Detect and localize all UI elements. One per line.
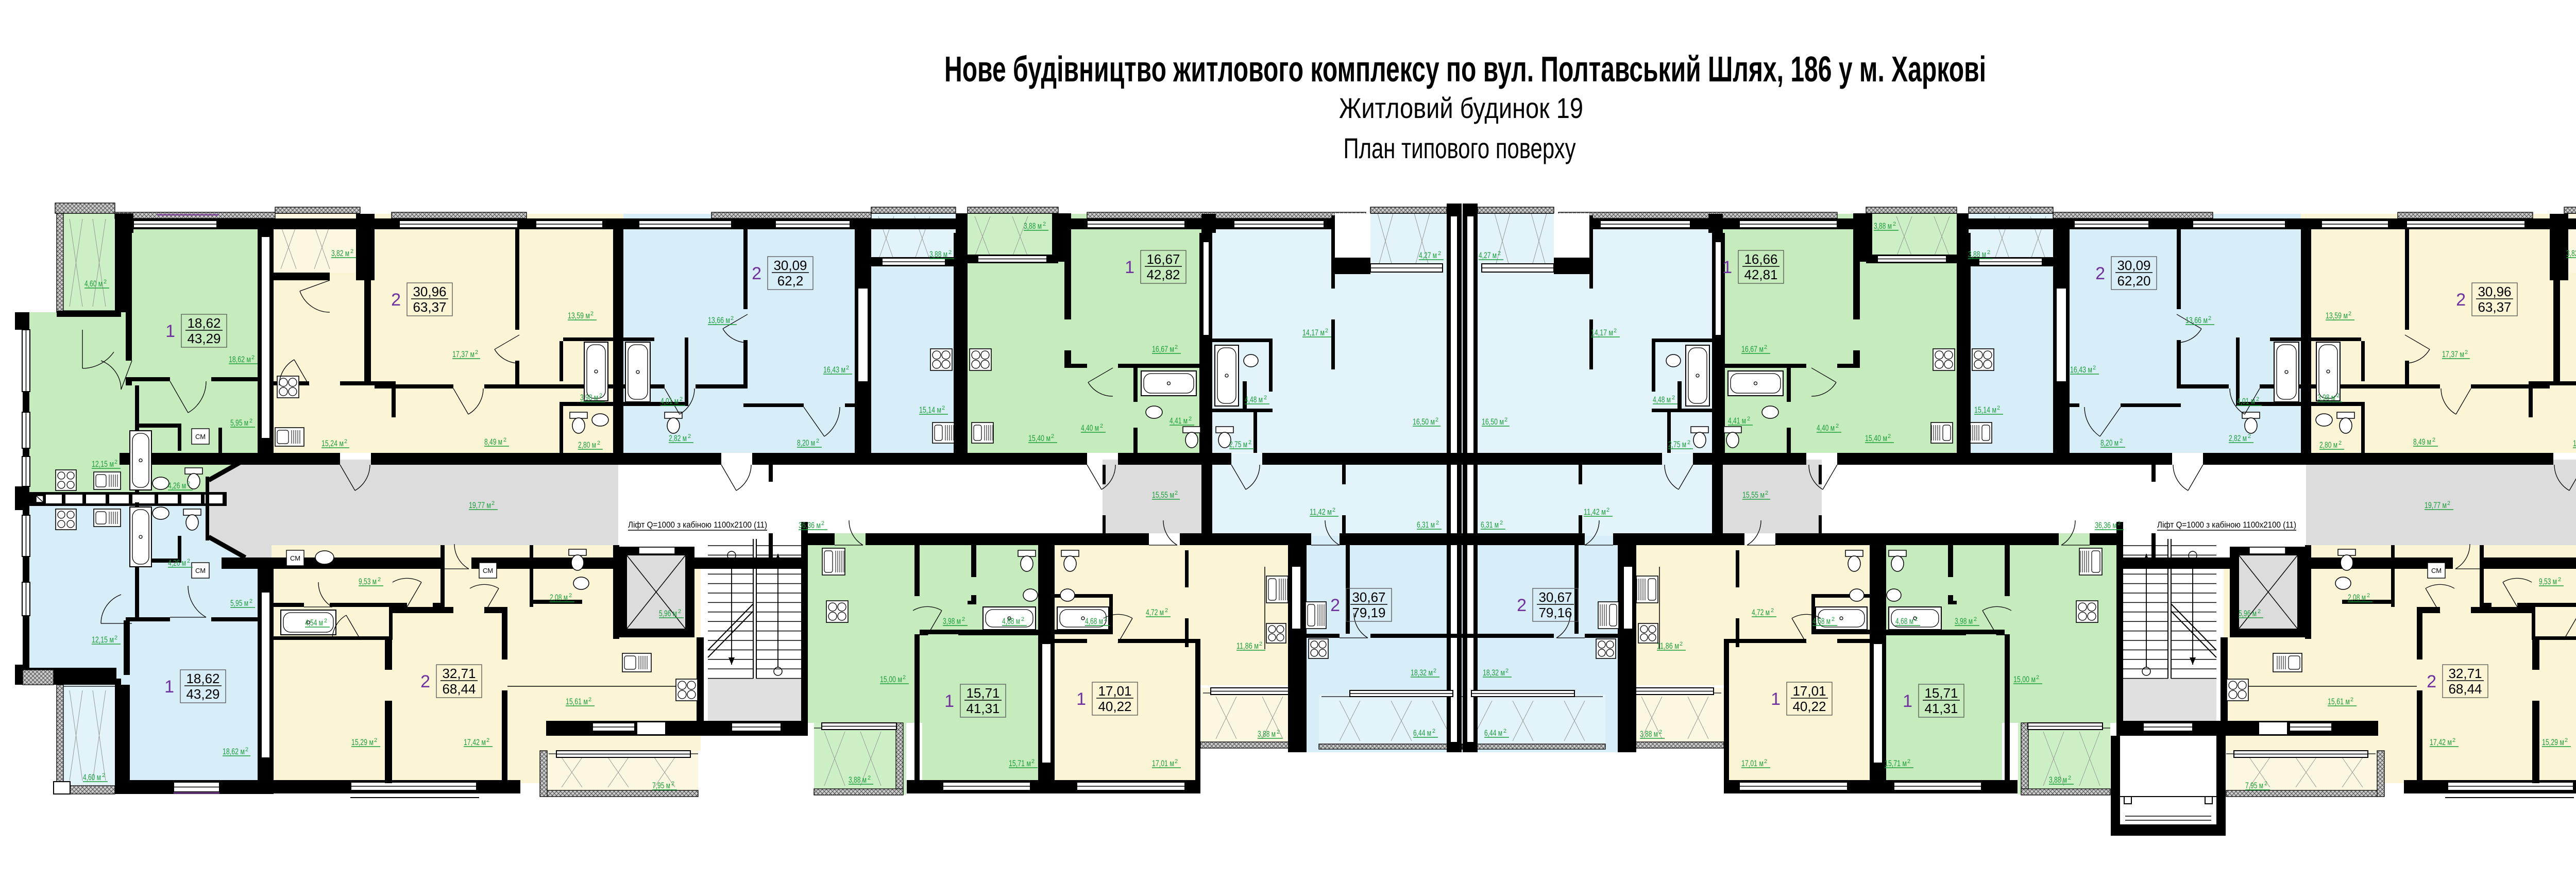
svg-text:2: 2 <box>249 598 252 604</box>
svg-text:2: 2 <box>816 438 819 444</box>
svg-text:62,2: 62,2 <box>777 273 804 289</box>
svg-text:15,14 м: 15,14 м <box>1974 405 1996 415</box>
svg-text:15,14 м: 15,14 м <box>919 405 941 415</box>
svg-text:4,27 м: 4,27 м <box>1419 251 1437 260</box>
svg-text:2: 2 <box>821 520 824 527</box>
svg-text:15,71 м: 15,71 м <box>1885 759 1907 768</box>
svg-text:3,98 м: 3,98 м <box>943 617 961 626</box>
svg-text:13,66 м: 13,66 м <box>708 316 730 325</box>
svg-text:1: 1 <box>165 322 175 341</box>
svg-text:2: 2 <box>492 500 495 506</box>
svg-text:40,22: 40,22 <box>1098 699 1131 714</box>
svg-text:2,08 м: 2,08 м <box>550 593 568 602</box>
svg-text:17,42 м: 17,42 м <box>464 738 486 747</box>
svg-text:4,41 м: 4,41 м <box>1170 416 1188 426</box>
svg-text:2: 2 <box>2068 775 2071 781</box>
svg-text:8,20 м: 8,20 м <box>797 438 815 448</box>
svg-text:2: 2 <box>1500 520 1503 526</box>
svg-text:2: 2 <box>2558 577 2561 583</box>
svg-text:9,53 м: 9,53 м <box>2539 577 2557 586</box>
svg-text:2: 2 <box>2338 440 2342 446</box>
svg-text:15,71 м: 15,71 м <box>1009 759 1031 768</box>
svg-text:2: 2 <box>2465 349 2468 356</box>
svg-text:3,98 м: 3,98 м <box>580 393 598 402</box>
svg-text:40,22: 40,22 <box>1792 699 1826 714</box>
svg-text:2: 2 <box>1997 405 2000 411</box>
svg-text:2,82 м: 2,82 м <box>2229 434 2247 443</box>
svg-text:2: 2 <box>569 593 572 599</box>
svg-text:СМ: СМ <box>483 567 493 574</box>
svg-text:15,61 м: 15,61 м <box>566 697 588 706</box>
svg-text:3,88 м: 3,88 м <box>849 775 867 785</box>
svg-text:2: 2 <box>846 365 849 371</box>
svg-text:15,40 м: 15,40 м <box>1865 434 1887 443</box>
svg-text:2: 2 <box>1888 433 1891 439</box>
svg-text:1: 1 <box>164 677 174 697</box>
svg-text:68,44: 68,44 <box>442 681 476 697</box>
svg-text:2: 2 <box>752 264 761 283</box>
svg-text:5,96 м: 5,96 м <box>2239 609 2257 618</box>
svg-text:17,42 м: 17,42 м <box>2430 738 2452 747</box>
svg-text:2: 2 <box>503 437 506 443</box>
svg-text:13,66 м: 13,66 м <box>2185 316 2208 325</box>
svg-text:4,68 м: 4,68 м <box>1895 617 1913 626</box>
svg-text:32,71: 32,71 <box>442 666 476 681</box>
svg-text:1: 1 <box>1076 689 1086 709</box>
svg-text:2: 2 <box>1433 668 1436 674</box>
svg-text:63,37: 63,37 <box>2478 299 2511 315</box>
svg-text:19,77 м: 19,77 м <box>469 501 491 510</box>
svg-text:13,59 м: 13,59 м <box>568 311 590 320</box>
svg-text:2: 2 <box>1104 616 1107 622</box>
svg-text:2,82 м: 2,82 м <box>669 434 687 443</box>
svg-text:2: 2 <box>962 616 965 622</box>
svg-text:4,60 м: 4,60 м <box>83 773 101 782</box>
svg-text:15,24 м: 15,24 м <box>321 439 344 448</box>
svg-text:2: 2 <box>1031 758 1035 765</box>
svg-text:2: 2 <box>324 618 327 624</box>
svg-text:3,98 м: 3,98 м <box>1955 617 1973 626</box>
svg-text:79,19: 79,19 <box>1352 605 1385 620</box>
svg-text:2: 2 <box>1893 221 1896 227</box>
svg-text:4,26 м: 4,26 м <box>168 481 186 491</box>
svg-text:2: 2 <box>1765 490 1768 496</box>
svg-text:2: 2 <box>731 315 734 322</box>
svg-text:17,01 м: 17,01 м <box>1741 759 1764 768</box>
svg-text:12,15 м: 12,15 м <box>92 635 114 645</box>
svg-text:18,62: 18,62 <box>187 315 221 331</box>
svg-text:16,66: 16,66 <box>1744 251 1777 267</box>
svg-text:5,96 м: 5,96 м <box>659 609 677 618</box>
svg-text:2: 2 <box>1747 416 1750 422</box>
svg-text:4,40 м: 4,40 м <box>1817 424 1835 433</box>
svg-text:4,68 м: 4,68 м <box>1002 617 1020 626</box>
svg-text:2: 2 <box>245 747 248 753</box>
svg-text:2: 2 <box>903 674 906 681</box>
svg-text:2: 2 <box>1189 416 1192 422</box>
svg-text:2: 2 <box>2565 737 2568 743</box>
svg-text:8,49 м: 8,49 м <box>2413 437 2431 447</box>
svg-text:15,24 м: 15,24 м <box>2573 439 2576 448</box>
svg-text:41,31: 41,31 <box>1924 701 1958 716</box>
svg-text:2: 2 <box>2452 737 2455 743</box>
svg-text:43,29: 43,29 <box>187 331 221 346</box>
svg-text:2: 2 <box>2036 674 2039 681</box>
svg-text:2: 2 <box>1672 395 1675 401</box>
svg-text:4,54 м: 4,54 м <box>305 618 323 628</box>
svg-text:2,08 м: 2,08 м <box>2348 593 2366 602</box>
svg-text:7,95 м: 7,95 м <box>2245 781 2263 790</box>
svg-text:2: 2 <box>1435 417 1438 423</box>
svg-text:2: 2 <box>1505 668 1509 674</box>
svg-text:3,98 м: 3,98 м <box>2317 393 2335 402</box>
svg-text:4,72 м: 4,72 м <box>1752 608 1770 617</box>
svg-text:6,44 м: 6,44 м <box>1484 729 1502 738</box>
svg-text:2: 2 <box>1277 729 1280 735</box>
svg-text:17,37 м: 17,37 м <box>2442 350 2464 359</box>
svg-text:1: 1 <box>1722 258 1732 277</box>
svg-text:2: 2 <box>2208 315 2211 322</box>
svg-text:2: 2 <box>1021 616 1024 622</box>
svg-text:4,40 м: 4,40 м <box>1081 424 1099 433</box>
svg-text:15,71: 15,71 <box>1924 685 1958 701</box>
svg-text:8,49 м: 8,49 м <box>484 437 502 447</box>
svg-text:4,41 м: 4,41 м <box>1728 416 1746 426</box>
svg-text:2,80 м: 2,80 м <box>578 441 596 450</box>
svg-text:16,50 м: 16,50 м <box>1413 417 1435 427</box>
svg-text:42,82: 42,82 <box>1146 267 1180 282</box>
svg-text:16,67 м: 16,67 м <box>1741 345 1764 354</box>
svg-text:3,88 м: 3,88 м <box>2049 775 2067 785</box>
svg-text:2: 2 <box>1332 507 1335 513</box>
svg-text:18,62 м: 18,62 м <box>229 355 251 364</box>
svg-text:15,40 м: 15,40 м <box>1028 434 1050 443</box>
svg-text:2: 2 <box>1438 250 1441 257</box>
svg-text:3,82 м: 3,82 м <box>2566 249 2576 258</box>
svg-text:2: 2 <box>588 697 591 703</box>
svg-text:15,29 м: 15,29 м <box>351 738 374 747</box>
svg-text:3,88 м: 3,88 м <box>1874 222 1892 231</box>
svg-text:2: 2 <box>2095 264 2105 283</box>
svg-text:4,01 м: 4,01 м <box>2237 397 2255 406</box>
svg-text:2: 2 <box>2248 433 2251 439</box>
svg-text:16,67 м: 16,67 м <box>1152 345 1174 354</box>
svg-text:План типового поверху: План типового поверху <box>1344 132 1576 164</box>
svg-text:13,59 м: 13,59 м <box>2326 311 2348 320</box>
svg-text:2: 2 <box>1687 439 1690 446</box>
svg-text:6,31 м: 6,31 м <box>1481 520 1499 530</box>
svg-text:2: 2 <box>249 418 252 424</box>
svg-text:17,01: 17,01 <box>1792 683 1826 699</box>
svg-text:18,32 м: 18,32 м <box>1411 668 1433 678</box>
svg-text:17,01: 17,01 <box>1098 683 1131 699</box>
svg-text:2: 2 <box>1264 395 1267 401</box>
svg-text:2: 2 <box>1659 729 1662 735</box>
svg-text:2: 2 <box>1175 344 1178 350</box>
svg-text:2: 2 <box>1436 520 1439 526</box>
svg-text:4,01 м: 4,01 м <box>660 397 679 406</box>
svg-text:14,17 м: 14,17 м <box>1591 328 1613 337</box>
svg-text:2: 2 <box>1175 490 1178 496</box>
svg-text:79,16: 79,16 <box>1538 605 1572 620</box>
svg-text:2,75 м: 2,75 м <box>1668 440 1686 449</box>
svg-text:2: 2 <box>251 354 255 361</box>
svg-text:11,42 м: 11,42 м <box>1584 508 1606 517</box>
svg-text:14,17 м: 14,17 м <box>1302 328 1325 337</box>
svg-text:2: 2 <box>1498 250 1501 257</box>
svg-text:2: 2 <box>2350 697 2353 703</box>
svg-text:11,86 м: 11,86 м <box>1657 641 1679 651</box>
svg-text:16,67: 16,67 <box>1146 251 1180 267</box>
svg-text:2: 2 <box>420 672 430 691</box>
svg-text:2: 2 <box>1974 616 1977 622</box>
svg-text:30,09: 30,09 <box>2117 258 2150 273</box>
svg-text:2: 2 <box>2093 365 2096 371</box>
svg-text:2: 2 <box>1432 728 1435 734</box>
svg-text:2: 2 <box>1330 596 1340 615</box>
svg-text:2: 2 <box>344 438 347 445</box>
svg-text:16,50 м: 16,50 м <box>1482 417 1504 427</box>
svg-text:2: 2 <box>2336 393 2340 399</box>
svg-text:62,20: 62,20 <box>2117 273 2150 289</box>
svg-text:42,81: 42,81 <box>1744 267 1777 282</box>
svg-text:2: 2 <box>1836 423 1839 429</box>
svg-text:15,71: 15,71 <box>966 685 999 701</box>
svg-text:2: 2 <box>597 440 600 446</box>
svg-text:2: 2 <box>1100 423 1103 429</box>
svg-text:2: 2 <box>2427 672 2436 691</box>
svg-text:2: 2 <box>1248 439 1251 446</box>
svg-text:15,61 м: 15,61 м <box>2328 697 2350 706</box>
svg-text:16,43 м: 16,43 м <box>2070 365 2092 375</box>
svg-text:1: 1 <box>1771 689 1781 709</box>
svg-text:2: 2 <box>1175 758 1178 765</box>
svg-text:2: 2 <box>680 396 683 402</box>
svg-text:1: 1 <box>1903 691 1912 711</box>
svg-text:2: 2 <box>378 577 381 583</box>
svg-text:2: 2 <box>350 248 353 255</box>
svg-text:2: 2 <box>2120 438 2123 444</box>
svg-text:6,44 м: 6,44 м <box>1413 729 1431 738</box>
svg-text:43,29: 43,29 <box>186 686 219 702</box>
svg-text:Нове будівництво житлового ком: Нове будівництво житлового комплексу по … <box>944 49 1986 89</box>
svg-text:2: 2 <box>2456 290 2466 310</box>
svg-text:17,01 м: 17,01 м <box>1152 759 1174 768</box>
svg-text:2: 2 <box>1606 507 1609 513</box>
svg-text:СМ: СМ <box>2431 567 2442 574</box>
svg-text:3,88 м: 3,88 м <box>929 250 947 259</box>
svg-text:2: 2 <box>1259 641 1262 647</box>
svg-text:3,88 м: 3,88 м <box>1968 250 1986 259</box>
svg-text:СМ: СМ <box>290 554 300 562</box>
svg-text:2: 2 <box>1503 728 1506 734</box>
svg-text:2: 2 <box>1907 758 1910 765</box>
svg-text:2: 2 <box>2264 781 2267 787</box>
svg-text:5,95 м: 5,95 м <box>230 599 248 608</box>
svg-text:2: 2 <box>102 772 105 779</box>
svg-text:15,55 м: 15,55 м <box>1742 491 1765 500</box>
svg-text:63,37: 63,37 <box>413 299 446 315</box>
svg-text:3,82 м: 3,82 м <box>331 249 349 258</box>
svg-text:30,09: 30,09 <box>773 258 807 273</box>
svg-text:2: 2 <box>599 393 602 399</box>
svg-text:2: 2 <box>2367 593 2370 599</box>
svg-text:11,42 м: 11,42 м <box>1310 508 1332 517</box>
svg-text:2: 2 <box>187 481 190 487</box>
svg-text:СМ: СМ <box>195 433 206 441</box>
svg-text:30,96: 30,96 <box>413 284 446 299</box>
svg-text:5,95 м: 5,95 м <box>230 418 248 428</box>
svg-text:2: 2 <box>2432 437 2435 443</box>
svg-text:12,15 м: 12,15 м <box>92 460 114 469</box>
svg-text:4,72 м: 4,72 м <box>1146 608 1164 617</box>
svg-text:2: 2 <box>114 459 117 465</box>
svg-text:16,43 м: 16,43 м <box>823 365 845 375</box>
svg-text:2: 2 <box>678 608 681 615</box>
svg-text:2: 2 <box>2256 396 2259 402</box>
svg-text:2: 2 <box>1771 607 1774 614</box>
svg-text:18,32 м: 18,32 м <box>1483 668 1505 678</box>
svg-text:2: 2 <box>1325 328 1328 334</box>
svg-text:2: 2 <box>2117 520 2121 527</box>
svg-text:4,48 м: 4,48 м <box>1653 395 1671 404</box>
svg-text:2: 2 <box>1517 596 1527 615</box>
svg-text:3,88 м: 3,88 м <box>1640 730 1658 739</box>
svg-text:2: 2 <box>1165 607 1168 614</box>
svg-text:9,53 м: 9,53 м <box>359 577 377 586</box>
svg-text:7,95 м: 7,95 м <box>652 781 670 790</box>
svg-text:18,62: 18,62 <box>186 671 219 686</box>
svg-text:2: 2 <box>1051 433 1054 439</box>
svg-text:8,20 м: 8,20 м <box>2100 438 2119 448</box>
svg-text:СМ: СМ <box>195 567 206 574</box>
svg-text:36,36 м: 36,36 м <box>2095 521 2117 530</box>
svg-text:2: 2 <box>942 405 945 411</box>
svg-text:19,77 м: 19,77 м <box>2425 501 2447 510</box>
svg-text:2: 2 <box>1914 616 1918 622</box>
svg-text:4,68 м: 4,68 м <box>1085 617 1103 626</box>
svg-text:Ліфт Q=1000 з кабіною 1100х210: Ліфт Q=1000 з кабіною 1100х2100 (11) <box>628 520 767 530</box>
svg-text:32,71: 32,71 <box>2448 666 2482 681</box>
svg-text:2: 2 <box>486 737 489 743</box>
svg-text:15,00 м: 15,00 м <box>2013 675 2036 684</box>
svg-text:18,62 м: 18,62 м <box>223 747 245 756</box>
svg-text:15,29 м: 15,29 м <box>2542 738 2564 747</box>
svg-text:2: 2 <box>868 775 871 781</box>
svg-text:3,88 м: 3,88 м <box>1024 222 1042 231</box>
svg-text:2: 2 <box>688 433 691 439</box>
svg-text:2: 2 <box>1680 641 1683 647</box>
svg-text:2,75 м: 2,75 м <box>1229 440 1247 449</box>
svg-text:2: 2 <box>2258 608 2261 615</box>
svg-text:15,00 м: 15,00 м <box>880 675 902 684</box>
svg-text:15,55 м: 15,55 м <box>1152 491 1174 500</box>
svg-text:30,67: 30,67 <box>1538 589 1572 605</box>
svg-text:2: 2 <box>1504 417 1507 423</box>
svg-text:2: 2 <box>671 781 674 787</box>
svg-text:2: 2 <box>374 737 377 743</box>
svg-text:2: 2 <box>1043 221 1046 227</box>
svg-text:17,37 м: 17,37 м <box>452 350 474 359</box>
svg-text:2: 2 <box>1832 616 1835 622</box>
svg-text:2: 2 <box>2447 500 2450 506</box>
svg-text:2: 2 <box>475 349 478 356</box>
svg-text:30,96: 30,96 <box>2478 284 2511 299</box>
svg-text:2: 2 <box>104 279 107 285</box>
svg-text:6,31 м: 6,31 м <box>1417 520 1435 530</box>
svg-text:2: 2 <box>114 635 117 641</box>
svg-text:2,80 м: 2,80 м <box>2319 441 2337 450</box>
svg-text:2: 2 <box>590 311 594 317</box>
svg-text:11,86 м: 11,86 м <box>1236 641 1259 651</box>
svg-text:2: 2 <box>948 249 952 256</box>
svg-text:36,36 м: 36,36 м <box>799 521 821 530</box>
svg-text:2: 2 <box>1764 758 1767 765</box>
svg-text:4,68 м: 4,68 м <box>1812 617 1831 626</box>
svg-text:Житловий будинок 19: Житловий будинок 19 <box>1339 92 1583 124</box>
svg-text:2: 2 <box>1764 344 1767 350</box>
svg-text:1: 1 <box>1125 258 1134 277</box>
svg-text:41,31: 41,31 <box>966 701 999 716</box>
svg-text:Ліфт Q=1000 з кабіною 1100х210: Ліфт Q=1000 з кабіною 1100х2100 (11) <box>2157 520 2296 530</box>
svg-text:4,48 м: 4,48 м <box>1245 395 1263 404</box>
svg-text:68,44: 68,44 <box>2448 681 2482 697</box>
svg-text:4,60 м: 4,60 м <box>84 279 103 289</box>
svg-text:2: 2 <box>2348 311 2351 317</box>
svg-text:4,27 м: 4,27 м <box>1479 251 1497 260</box>
svg-text:2: 2 <box>391 290 401 310</box>
svg-text:2: 2 <box>1987 249 1990 256</box>
svg-text:3,88 м: 3,88 м <box>1258 730 1276 739</box>
svg-text:2: 2 <box>187 558 190 564</box>
svg-text:30,67: 30,67 <box>1352 589 1385 605</box>
svg-text:2: 2 <box>1614 328 1617 334</box>
svg-text:4,26 м: 4,26 м <box>168 559 186 568</box>
svg-text:1: 1 <box>944 691 954 711</box>
